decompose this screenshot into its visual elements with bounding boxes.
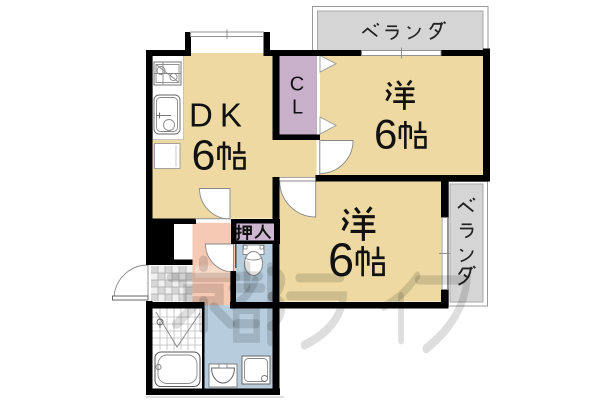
svg-text:L: L bbox=[292, 97, 303, 119]
svg-text:DK: DK bbox=[189, 97, 249, 134]
svg-text:C: C bbox=[290, 74, 304, 96]
svg-text:6: 6 bbox=[192, 132, 216, 180]
svg-text:6: 6 bbox=[374, 111, 397, 158]
